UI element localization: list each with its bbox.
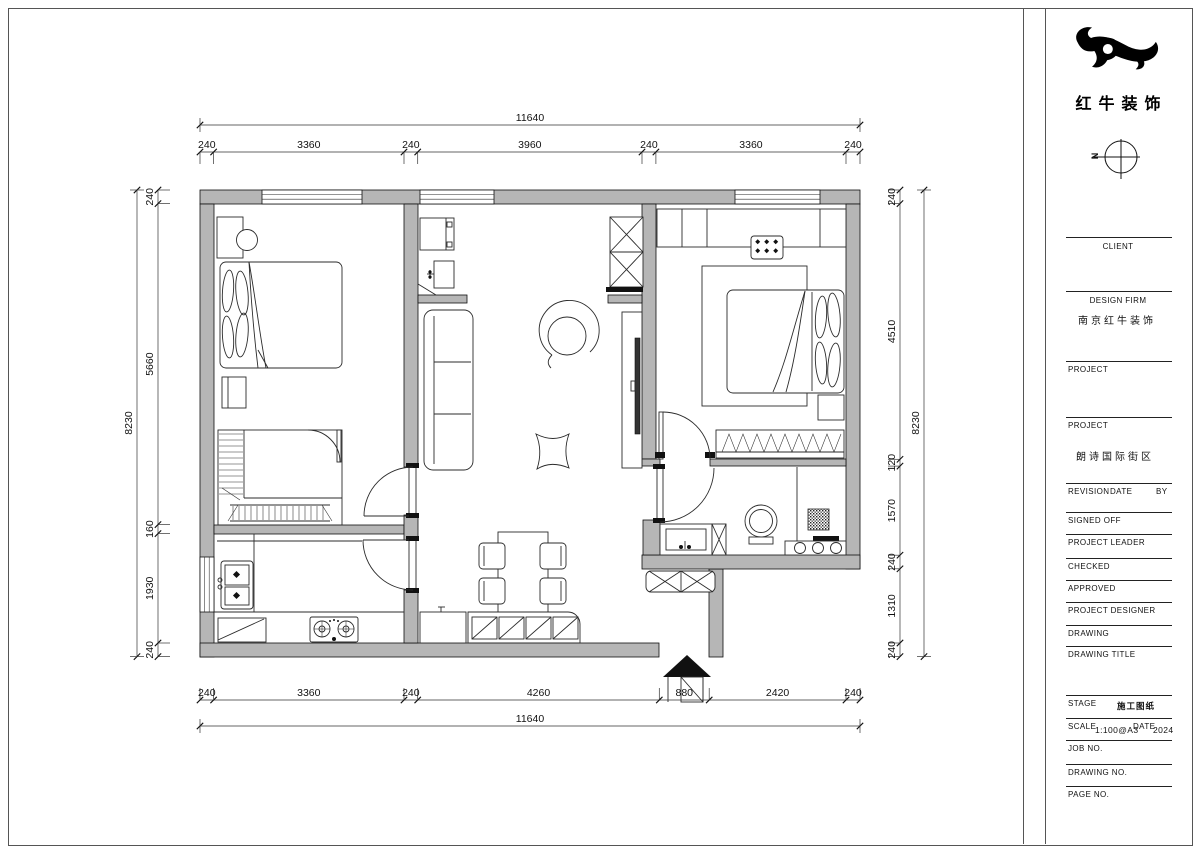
kitchen xyxy=(214,534,404,642)
rule xyxy=(1066,237,1172,238)
dimension-label: 3360 xyxy=(739,139,763,151)
dimension-label: 240 xyxy=(886,641,898,659)
rule xyxy=(1066,512,1172,513)
tv-cabinet-icon xyxy=(622,312,642,468)
dining-table-icon xyxy=(479,532,566,612)
project1-label: PROJECT xyxy=(1068,365,1108,374)
bedroom-1 xyxy=(217,217,342,525)
gas-stove-icon xyxy=(310,617,358,642)
client-label: CLIENT xyxy=(1046,242,1190,251)
dimension-label: 240 xyxy=(144,188,156,206)
brand-logo-icon xyxy=(1068,20,1164,80)
dimension-label: 240 xyxy=(402,139,420,151)
walk-in-closet-icon xyxy=(218,430,342,525)
brand-name: 红牛装饰 xyxy=(1046,90,1190,114)
window-icon xyxy=(420,190,494,204)
north-label: N xyxy=(1089,153,1099,160)
dresser-stool-icon xyxy=(751,236,783,259)
floor-plan: 2403360240396024033602401164024033602404… xyxy=(0,0,1030,852)
dimension-label: 1310 xyxy=(886,594,898,618)
drawing-title-label: DRAWING TITLE xyxy=(1068,650,1135,659)
dimension-label: 240 xyxy=(886,188,898,206)
dimension-label: 1930 xyxy=(144,576,156,600)
dimension-label: 240 xyxy=(844,687,862,699)
entry xyxy=(646,571,715,702)
rule xyxy=(1066,417,1172,418)
bathroom-door xyxy=(653,464,714,523)
dimension-label: 4510 xyxy=(886,320,898,344)
window-icon xyxy=(262,190,362,204)
window-icon xyxy=(735,190,820,204)
dimension-label: 160 xyxy=(144,520,156,538)
wardrobe-hangers-icon xyxy=(716,430,844,458)
signed-off-label: SIGNED OFF xyxy=(1068,516,1121,525)
vanity-counter-icon xyxy=(785,541,846,555)
revision-label: REVISION xyxy=(1068,487,1109,496)
scale-label: SCALE xyxy=(1068,722,1096,731)
stage-label: STAGE xyxy=(1068,699,1097,708)
rule xyxy=(1066,786,1172,787)
drawing-sheet: 2403360240396024033602401164024033602404… xyxy=(0,0,1200,852)
job-no-label: JOB NO. xyxy=(1068,744,1103,753)
chair-icon xyxy=(540,543,566,569)
dimension-label: 3360 xyxy=(297,139,321,151)
dimension-label: 240 xyxy=(198,139,216,151)
swivel-chair-icon xyxy=(539,300,599,368)
kitchen-sink-icon xyxy=(218,561,253,609)
dimension-label: 11640 xyxy=(516,112,545,124)
rule xyxy=(1066,740,1172,741)
utility-sink-icon xyxy=(427,261,454,288)
chair-icon xyxy=(540,578,566,604)
dimension-label: 240 xyxy=(402,687,420,699)
scale-value: 1:100@A3 xyxy=(1095,725,1139,735)
dimension-label: 240 xyxy=(640,139,658,151)
ottoman-icon xyxy=(536,434,569,469)
design-firm-value: 南京红牛装饰 xyxy=(1078,312,1156,327)
rule xyxy=(1066,764,1172,765)
kitchen-door xyxy=(363,536,419,593)
laundry-cabinet-icon xyxy=(712,524,726,555)
nightstand xyxy=(818,395,844,420)
sideboard-icon xyxy=(420,607,580,643)
rule xyxy=(1066,534,1172,535)
chair-icon xyxy=(479,543,505,569)
window-icon xyxy=(200,557,214,612)
bathroom xyxy=(660,467,846,555)
double-bed-icon xyxy=(727,290,844,393)
checked-label: CHECKED xyxy=(1068,562,1110,571)
date-col-label: DATE xyxy=(1110,487,1132,496)
shoe-cabinet-icon xyxy=(646,571,715,592)
double-bed-icon xyxy=(220,262,342,368)
stage-value: 施工图纸 xyxy=(1117,700,1155,712)
closet-door-leaf xyxy=(337,430,341,462)
rule xyxy=(1066,361,1172,362)
fridge xyxy=(218,618,266,642)
dimension-label: 8230 xyxy=(910,411,922,435)
tv-icon xyxy=(635,338,640,434)
project-value: 朗诗国际街区 xyxy=(1076,448,1154,463)
dimension-label: 2420 xyxy=(766,687,790,699)
dimension-label: 880 xyxy=(675,687,693,699)
dimension-label: 8230 xyxy=(123,411,135,435)
dimension-label: 120 xyxy=(886,454,898,472)
page-no-label: PAGE NO. xyxy=(1068,790,1109,799)
floor-drain-icon xyxy=(808,509,829,530)
dimension-label: 11640 xyxy=(516,713,545,725)
dimension-label: 240 xyxy=(844,139,862,151)
table-lamp-icon xyxy=(237,230,258,251)
bedroom1-door xyxy=(364,463,419,518)
sofa-icon xyxy=(424,310,473,470)
entry-arrow-icon xyxy=(663,655,711,677)
living-dining xyxy=(418,217,643,643)
dimension-label: 3360 xyxy=(297,687,321,699)
title-block-left-border xyxy=(1045,8,1046,844)
nightstand xyxy=(222,377,246,408)
rule xyxy=(1066,602,1172,603)
drawing-no-label: DRAWING NO. xyxy=(1068,768,1127,777)
north-compass-icon xyxy=(1088,134,1150,186)
rule xyxy=(1066,718,1172,719)
toilet-icon xyxy=(745,505,777,544)
bedroom2-door xyxy=(655,412,715,459)
washing-machine-icon xyxy=(420,218,454,250)
rule xyxy=(1066,646,1172,647)
rule xyxy=(1066,291,1172,292)
rule xyxy=(1066,580,1172,581)
dimension-label: 240 xyxy=(886,553,898,571)
chair-icon xyxy=(479,578,505,604)
approved-label: APPROVED xyxy=(1068,584,1116,593)
dimension-label: 3960 xyxy=(518,139,542,151)
dimension-label: 4260 xyxy=(527,687,551,699)
rule xyxy=(1066,558,1172,559)
date-value: 2024 xyxy=(1153,725,1174,735)
project2-label: PROJECT xyxy=(1068,421,1108,430)
shelf xyxy=(813,536,839,541)
closet-door-swing xyxy=(308,430,340,462)
dimension-label: 1570 xyxy=(886,499,898,523)
date-label: DATE xyxy=(1133,722,1155,731)
dimension-label: 240 xyxy=(198,687,216,699)
rule xyxy=(1066,695,1172,696)
by-label: BY xyxy=(1156,487,1167,496)
dimension-label: 5660 xyxy=(144,352,156,376)
washbasin-icon xyxy=(660,524,712,555)
niche-line xyxy=(418,284,436,295)
project-designer-label: PROJECT DESIGNER xyxy=(1068,606,1156,615)
design-firm-label: DESIGN FIRM xyxy=(1046,296,1190,305)
dimension-label: 240 xyxy=(144,641,156,659)
rule xyxy=(1066,483,1172,484)
project-leader-label: PROJECT LEADER xyxy=(1068,538,1145,547)
rule xyxy=(1066,625,1172,626)
drawing-label: DRAWING xyxy=(1068,629,1109,638)
bedroom-2 xyxy=(657,209,846,458)
storage-cabinet-icon xyxy=(606,217,643,292)
